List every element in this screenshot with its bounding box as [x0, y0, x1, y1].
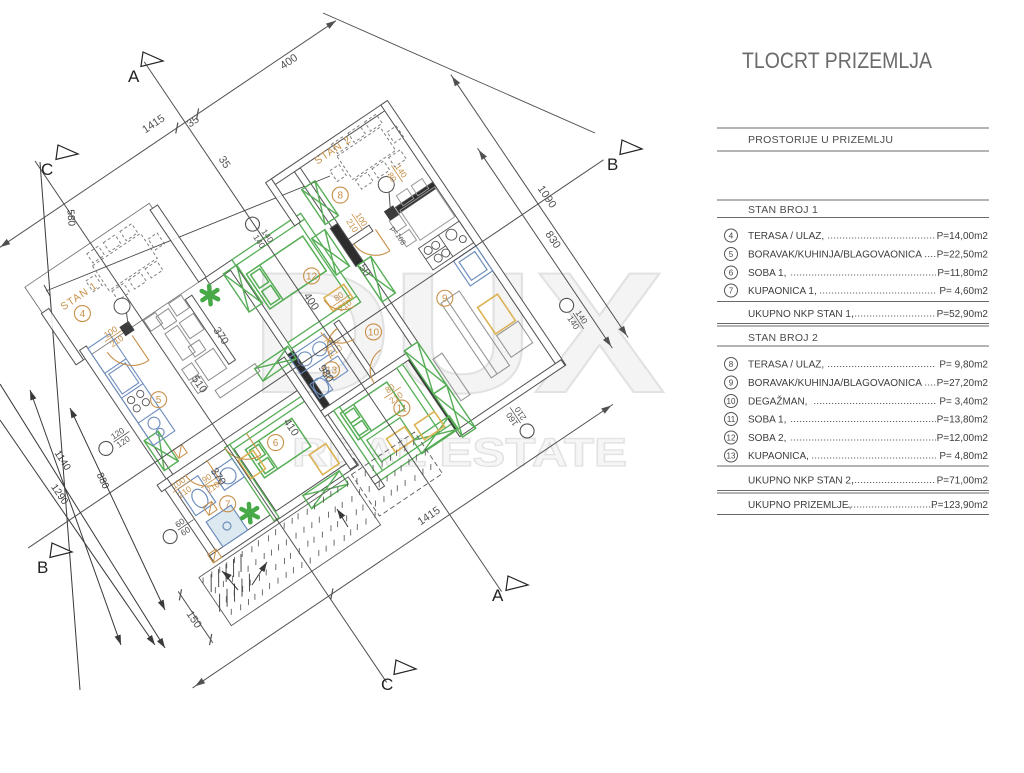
svg-text:13: 13 [727, 452, 736, 461]
svg-text:STAN BROJ 1: STAN BROJ 1 [748, 204, 818, 216]
svg-text:9: 9 [729, 379, 734, 388]
svg-text:C: C [41, 160, 53, 179]
svg-text:8: 8 [337, 191, 343, 202]
svg-text:P=71,00m2: P=71,00m2 [937, 476, 989, 487]
svg-text:BORAVAK/KUHINJA/BLAGOVAONICA: BORAVAK/KUHINJA/BLAGOVAONICA [748, 378, 922, 389]
svg-text:TERASA / ULAZ,: TERASA / ULAZ, [748, 360, 824, 371]
svg-text:6: 6 [729, 269, 734, 278]
svg-text:5: 5 [729, 250, 734, 259]
svg-text:10: 10 [368, 327, 380, 338]
svg-text:P=13,80m2: P=13,80m2 [937, 415, 989, 426]
svg-text:P=123,90m2: P=123,90m2 [931, 500, 988, 511]
svg-text:7: 7 [225, 499, 231, 510]
svg-text:B: B [37, 558, 48, 577]
svg-text:8: 8 [729, 360, 734, 369]
svg-text:9: 9 [442, 294, 448, 305]
svg-text:P=22,50m2: P=22,50m2 [937, 250, 989, 261]
svg-text:A: A [128, 67, 140, 86]
svg-text:TERASA / ULAZ,: TERASA / ULAZ, [748, 231, 824, 242]
svg-text:KUPAONICA,: KUPAONICA, [748, 451, 809, 462]
svg-text:A: A [492, 586, 504, 605]
svg-text:SOBA 2,: SOBA 2, [748, 433, 786, 444]
svg-text:UKUPNO NKP STAN 2,: UKUPNO NKP STAN 2, [748, 476, 854, 487]
svg-text:STAN BROJ 2: STAN BROJ 2 [748, 332, 818, 344]
svg-text:4: 4 [80, 309, 86, 320]
svg-text:P= 3,40m2: P= 3,40m2 [939, 397, 988, 408]
svg-text:7: 7 [729, 287, 734, 296]
svg-text:TLOCRT PRIZEMLJA: TLOCRT PRIZEMLJA [742, 48, 932, 73]
svg-text:10: 10 [727, 397, 736, 406]
svg-text:P=27,20m2: P=27,20m2 [937, 378, 989, 389]
svg-text:P= 4,80m2: P= 4,80m2 [939, 451, 988, 462]
svg-text:5: 5 [156, 395, 162, 406]
svg-text:P=12,00m2: P=12,00m2 [937, 433, 989, 444]
svg-text:BORAVAK/KUHINJA/BLAGOVAONICA: BORAVAK/KUHINJA/BLAGOVAONICA [748, 250, 922, 261]
svg-text:12: 12 [727, 434, 736, 443]
svg-text:11: 11 [397, 404, 408, 415]
svg-text:C: C [381, 675, 393, 694]
svg-text:UKUPNO PRIZEMLJE,: UKUPNO PRIZEMLJE, [748, 500, 851, 511]
svg-text:P= 9,80m2: P= 9,80m2 [939, 360, 988, 371]
svg-text:UKUPNO NKP STAN 1,: UKUPNO NKP STAN 1, [748, 309, 854, 320]
svg-text:6: 6 [273, 438, 279, 449]
svg-text:DEGAŽMAN,: DEGAŽMAN, [748, 395, 807, 408]
svg-text:KUPAONICA 1,: KUPAONICA 1, [748, 286, 817, 297]
svg-text:P=11,80m2: P=11,80m2 [937, 268, 988, 279]
svg-text:11: 11 [727, 415, 736, 424]
svg-text:PROSTORIJE U PRIZEMLJU: PROSTORIJE U PRIZEMLJU [748, 134, 893, 146]
svg-text:P= 4,60m2: P= 4,60m2 [939, 286, 988, 297]
svg-text:P=52,90m2: P=52,90m2 [937, 309, 989, 320]
svg-text:B: B [607, 155, 618, 174]
svg-text:580: 580 [64, 209, 76, 227]
svg-text:4: 4 [729, 232, 734, 241]
svg-text:SOBA 1,: SOBA 1, [748, 268, 786, 279]
svg-text:P=14,00m2: P=14,00m2 [937, 231, 989, 242]
svg-text:12: 12 [306, 271, 318, 282]
svg-text:SOBA 1,: SOBA 1, [748, 415, 786, 426]
